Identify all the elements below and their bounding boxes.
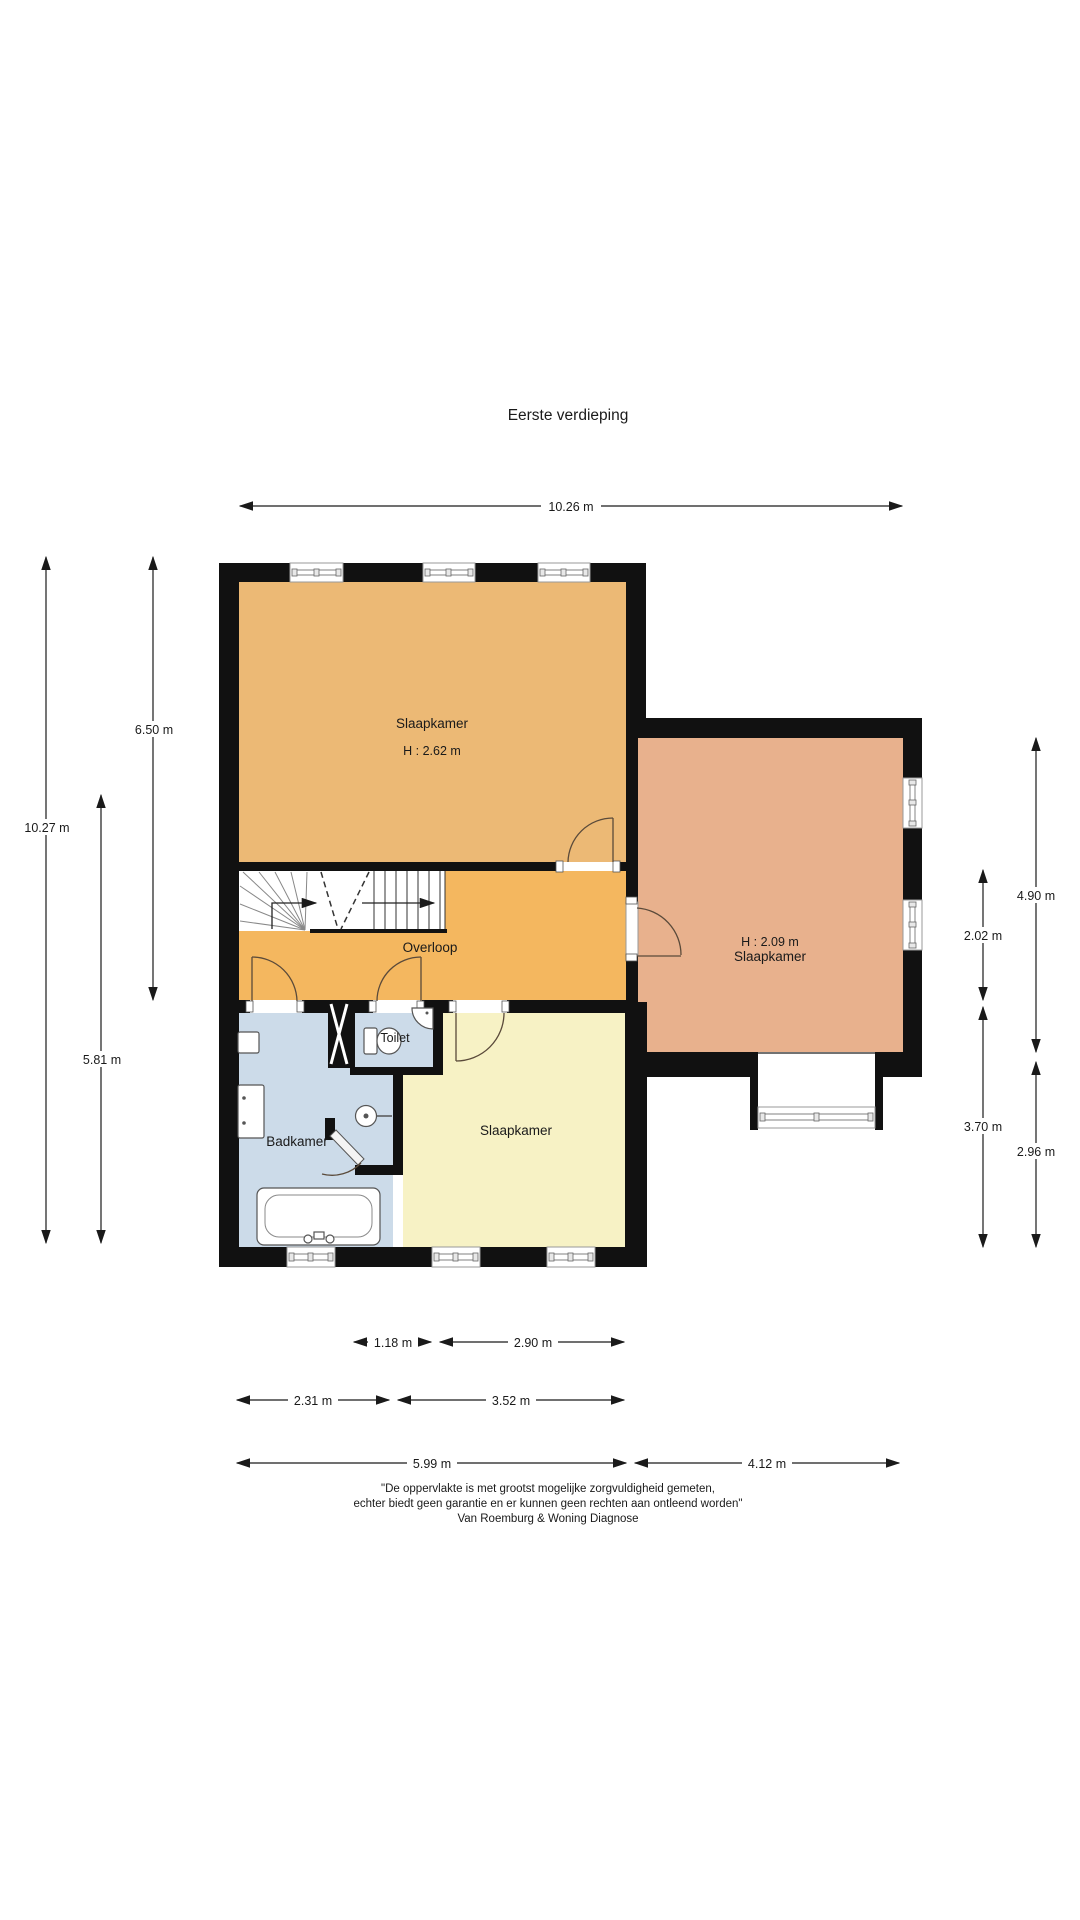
wall-segment (625, 1002, 647, 1267)
window (538, 563, 590, 582)
wall-segment (393, 1075, 403, 1175)
wall-segment (903, 738, 922, 778)
wall-segment (219, 563, 239, 1267)
dimension-bottom-row1-right: 2.90 m (440, 1334, 624, 1350)
wall-segment (875, 1077, 883, 1130)
label-overloop: Overloop (403, 940, 458, 955)
wall-segment (626, 718, 922, 738)
wall-segment (626, 738, 638, 902)
floorplan-canvas: Eerste verdieping (0, 0, 1080, 1920)
svg-text:5.99 m: 5.99 m (413, 1457, 451, 1471)
wall-segment (475, 563, 538, 582)
svg-text:10.26 m: 10.26 m (548, 500, 593, 514)
page-title: Eerste verdieping (508, 407, 629, 424)
window (290, 563, 343, 582)
dimension-left-lower: 5.81 m (75, 795, 129, 1243)
dimension-right-outer-upper: 4.90 m (1009, 738, 1063, 1052)
floorplan-page: Eerste verdieping (0, 0, 1080, 1920)
wall-segment (595, 1247, 647, 1267)
label-slaapkamer-right: Slaapkamer (734, 949, 807, 964)
window (903, 900, 922, 950)
label-slaapkamer-right-height: H : 2.09 m (741, 935, 799, 949)
disclaimer-line3: Van Roemburg & Woning Diagnose (457, 1513, 638, 1525)
wall-segment (626, 563, 646, 738)
svg-text:2.02 m: 2.02 m (964, 929, 1002, 943)
wall-segment (343, 563, 423, 582)
dimension-bottom-row1-left: 1.18 m (354, 1334, 431, 1350)
room-slaapkamer-bottom-floor-ext (403, 1075, 443, 1247)
svg-text:2.31 m: 2.31 m (294, 1394, 332, 1408)
room-slaapkamer-right-floor (636, 738, 903, 1052)
disclaimer: "De oppervlakte is met grootst mogelijke… (354, 1483, 743, 1525)
wall-segment (875, 1052, 922, 1077)
label-slaapkamer-main-height: H : 2.62 m (403, 744, 461, 758)
stair-edge (310, 929, 447, 933)
dimension-right-inner-upper: 2.02 m (956, 870, 1010, 1000)
label-badkamer: Badkamer (266, 1134, 328, 1149)
window (758, 1053, 875, 1128)
label-slaapkamer-main: Slaapkamer (396, 716, 469, 731)
bathtub (257, 1188, 380, 1245)
wall-segment (335, 1247, 432, 1267)
wall-segment (350, 1000, 355, 1075)
svg-text:4.90 m: 4.90 m (1017, 889, 1055, 903)
dimension-right-inner-lower: 3.70 m (956, 1007, 1010, 1247)
wall-segment (903, 828, 922, 900)
svg-text:1.18 m: 1.18 m (374, 1336, 412, 1350)
svg-text:3.52 m: 3.52 m (492, 1394, 530, 1408)
disclaimer-line1: "De oppervlakte is met grootst mogelijke… (381, 1483, 715, 1495)
svg-text:2.96 m: 2.96 m (1017, 1145, 1055, 1159)
dimension-bottom-row2-left: 2.31 m (237, 1392, 389, 1408)
wall-segment (480, 1247, 547, 1267)
wall-segment (350, 1067, 443, 1075)
staircase-floor (239, 871, 445, 931)
room-floors (239, 582, 903, 1247)
wall-segment (219, 563, 290, 582)
dimension-left-total: 10.27 m (17, 557, 77, 1243)
wall-segment (626, 956, 638, 1002)
wall-segment (507, 1000, 626, 1013)
dimension-right-outer-lower: 2.96 m (1009, 1062, 1063, 1247)
wall-segment (750, 1077, 758, 1130)
wall-segment (433, 1000, 443, 1075)
svg-text:3.70 m: 3.70 m (964, 1120, 1002, 1134)
window (423, 563, 475, 582)
disclaimer-line2: echter biedt geen garantie en er kunnen … (354, 1498, 743, 1510)
window (432, 1247, 480, 1267)
dimension-left-upper: 6.50 m (127, 557, 181, 1000)
window (547, 1247, 595, 1267)
wall-segment (239, 862, 560, 871)
svg-text:6.50 m: 6.50 m (135, 723, 173, 737)
svg-text:2.90 m: 2.90 m (514, 1336, 552, 1350)
dimension-top-width: 10.26 m (240, 498, 902, 514)
dimension-bottom-row3-right: 4.12 m (635, 1455, 899, 1471)
dimension-bottom-row2-right: 3.52 m (398, 1392, 624, 1408)
svg-text:5.81 m: 5.81 m (83, 1053, 121, 1067)
wall-segment (219, 1247, 287, 1267)
svg-text:10.27 m: 10.27 m (24, 821, 69, 835)
label-slaapkamer-bottom: Slaapkamer (480, 1123, 553, 1138)
wall-segment (355, 1165, 403, 1175)
wall-segment (647, 1052, 758, 1077)
window (903, 778, 922, 828)
dimension-bottom-row3-left: 5.99 m (237, 1455, 626, 1471)
window (287, 1247, 335, 1267)
label-toilet: Toilet (380, 1031, 410, 1045)
svg-text:4.12 m: 4.12 m (748, 1457, 786, 1471)
